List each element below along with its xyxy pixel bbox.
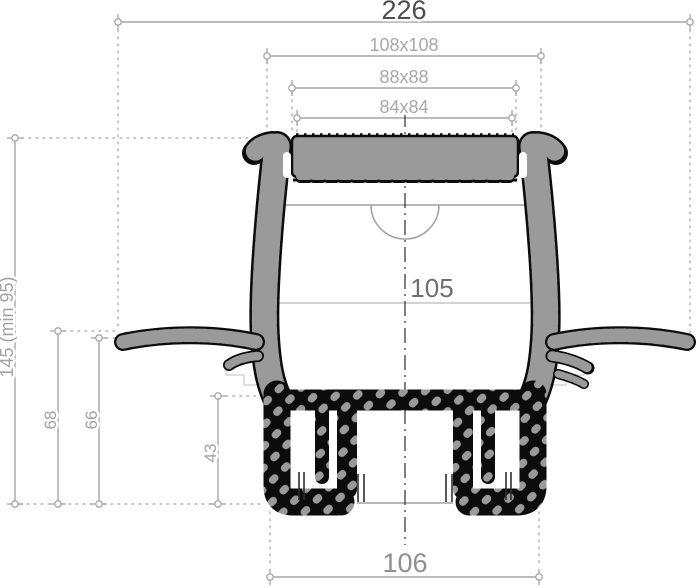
left-wall-top-rope (254, 143, 272, 153)
grate-gap-left (283, 152, 291, 178)
left-flange-rope (123, 335, 256, 342)
dim-label-outlet-width: 106 (382, 548, 427, 578)
dim-label-overall-height: 145 (min 95) (0, 276, 17, 377)
dim-label-outlet-height: 43 (201, 444, 220, 463)
grate-slab (292, 136, 518, 177)
dimension-marker (210, 501, 226, 507)
dimension-labels: 226 108x108 88x88 84x84 105 106 145 (min… (0, 0, 454, 578)
dim-label-membrane-height: 66 (82, 411, 101, 430)
dimension-marker (50, 501, 66, 507)
dim-label-overall-width: 226 (381, 0, 426, 25)
technical-drawing-canvas: 226 108x108 88x88 84x84 105 106 145 (min… (0, 0, 698, 588)
dimension-marker (294, 110, 300, 126)
drain-cross-section-drawing: 226 108x108 88x88 84x84 105 106 145 (min… (0, 0, 698, 588)
dimension-marker (513, 80, 519, 96)
dimension-marker (538, 48, 544, 64)
dimension-marker (7, 501, 23, 507)
right-wall-top-rope (538, 143, 556, 153)
dim-label-frame-mid: 88x88 (379, 67, 428, 87)
right-flange (552, 335, 687, 384)
right-flange-rope (554, 335, 687, 342)
grate (283, 135, 527, 180)
dim-label-bowl-width: 105 (410, 273, 453, 303)
dimension-marker (267, 569, 273, 585)
dimension-marker (687, 14, 693, 30)
dimension-marker (7, 135, 23, 141)
dim-label-grate: 84x84 (379, 97, 428, 117)
dimension-marker (115, 14, 121, 30)
left-wall-rope (264, 146, 277, 398)
dim-label-flange-top-height: 68 (41, 411, 60, 430)
dimension-marker (509, 110, 515, 126)
left-flange (123, 335, 258, 365)
dimension-marker (536, 569, 542, 585)
dimension-marker (50, 328, 66, 334)
dimension-marker (210, 393, 226, 399)
dimension-marker (289, 80, 295, 96)
right-wall-rope (533, 146, 546, 398)
dimension-marker (91, 501, 107, 507)
dim-label-frame-outer: 108x108 (369, 35, 438, 55)
dimension-marker (91, 335, 107, 341)
dimension-marker (264, 48, 270, 64)
grate-gap-right (519, 152, 527, 178)
